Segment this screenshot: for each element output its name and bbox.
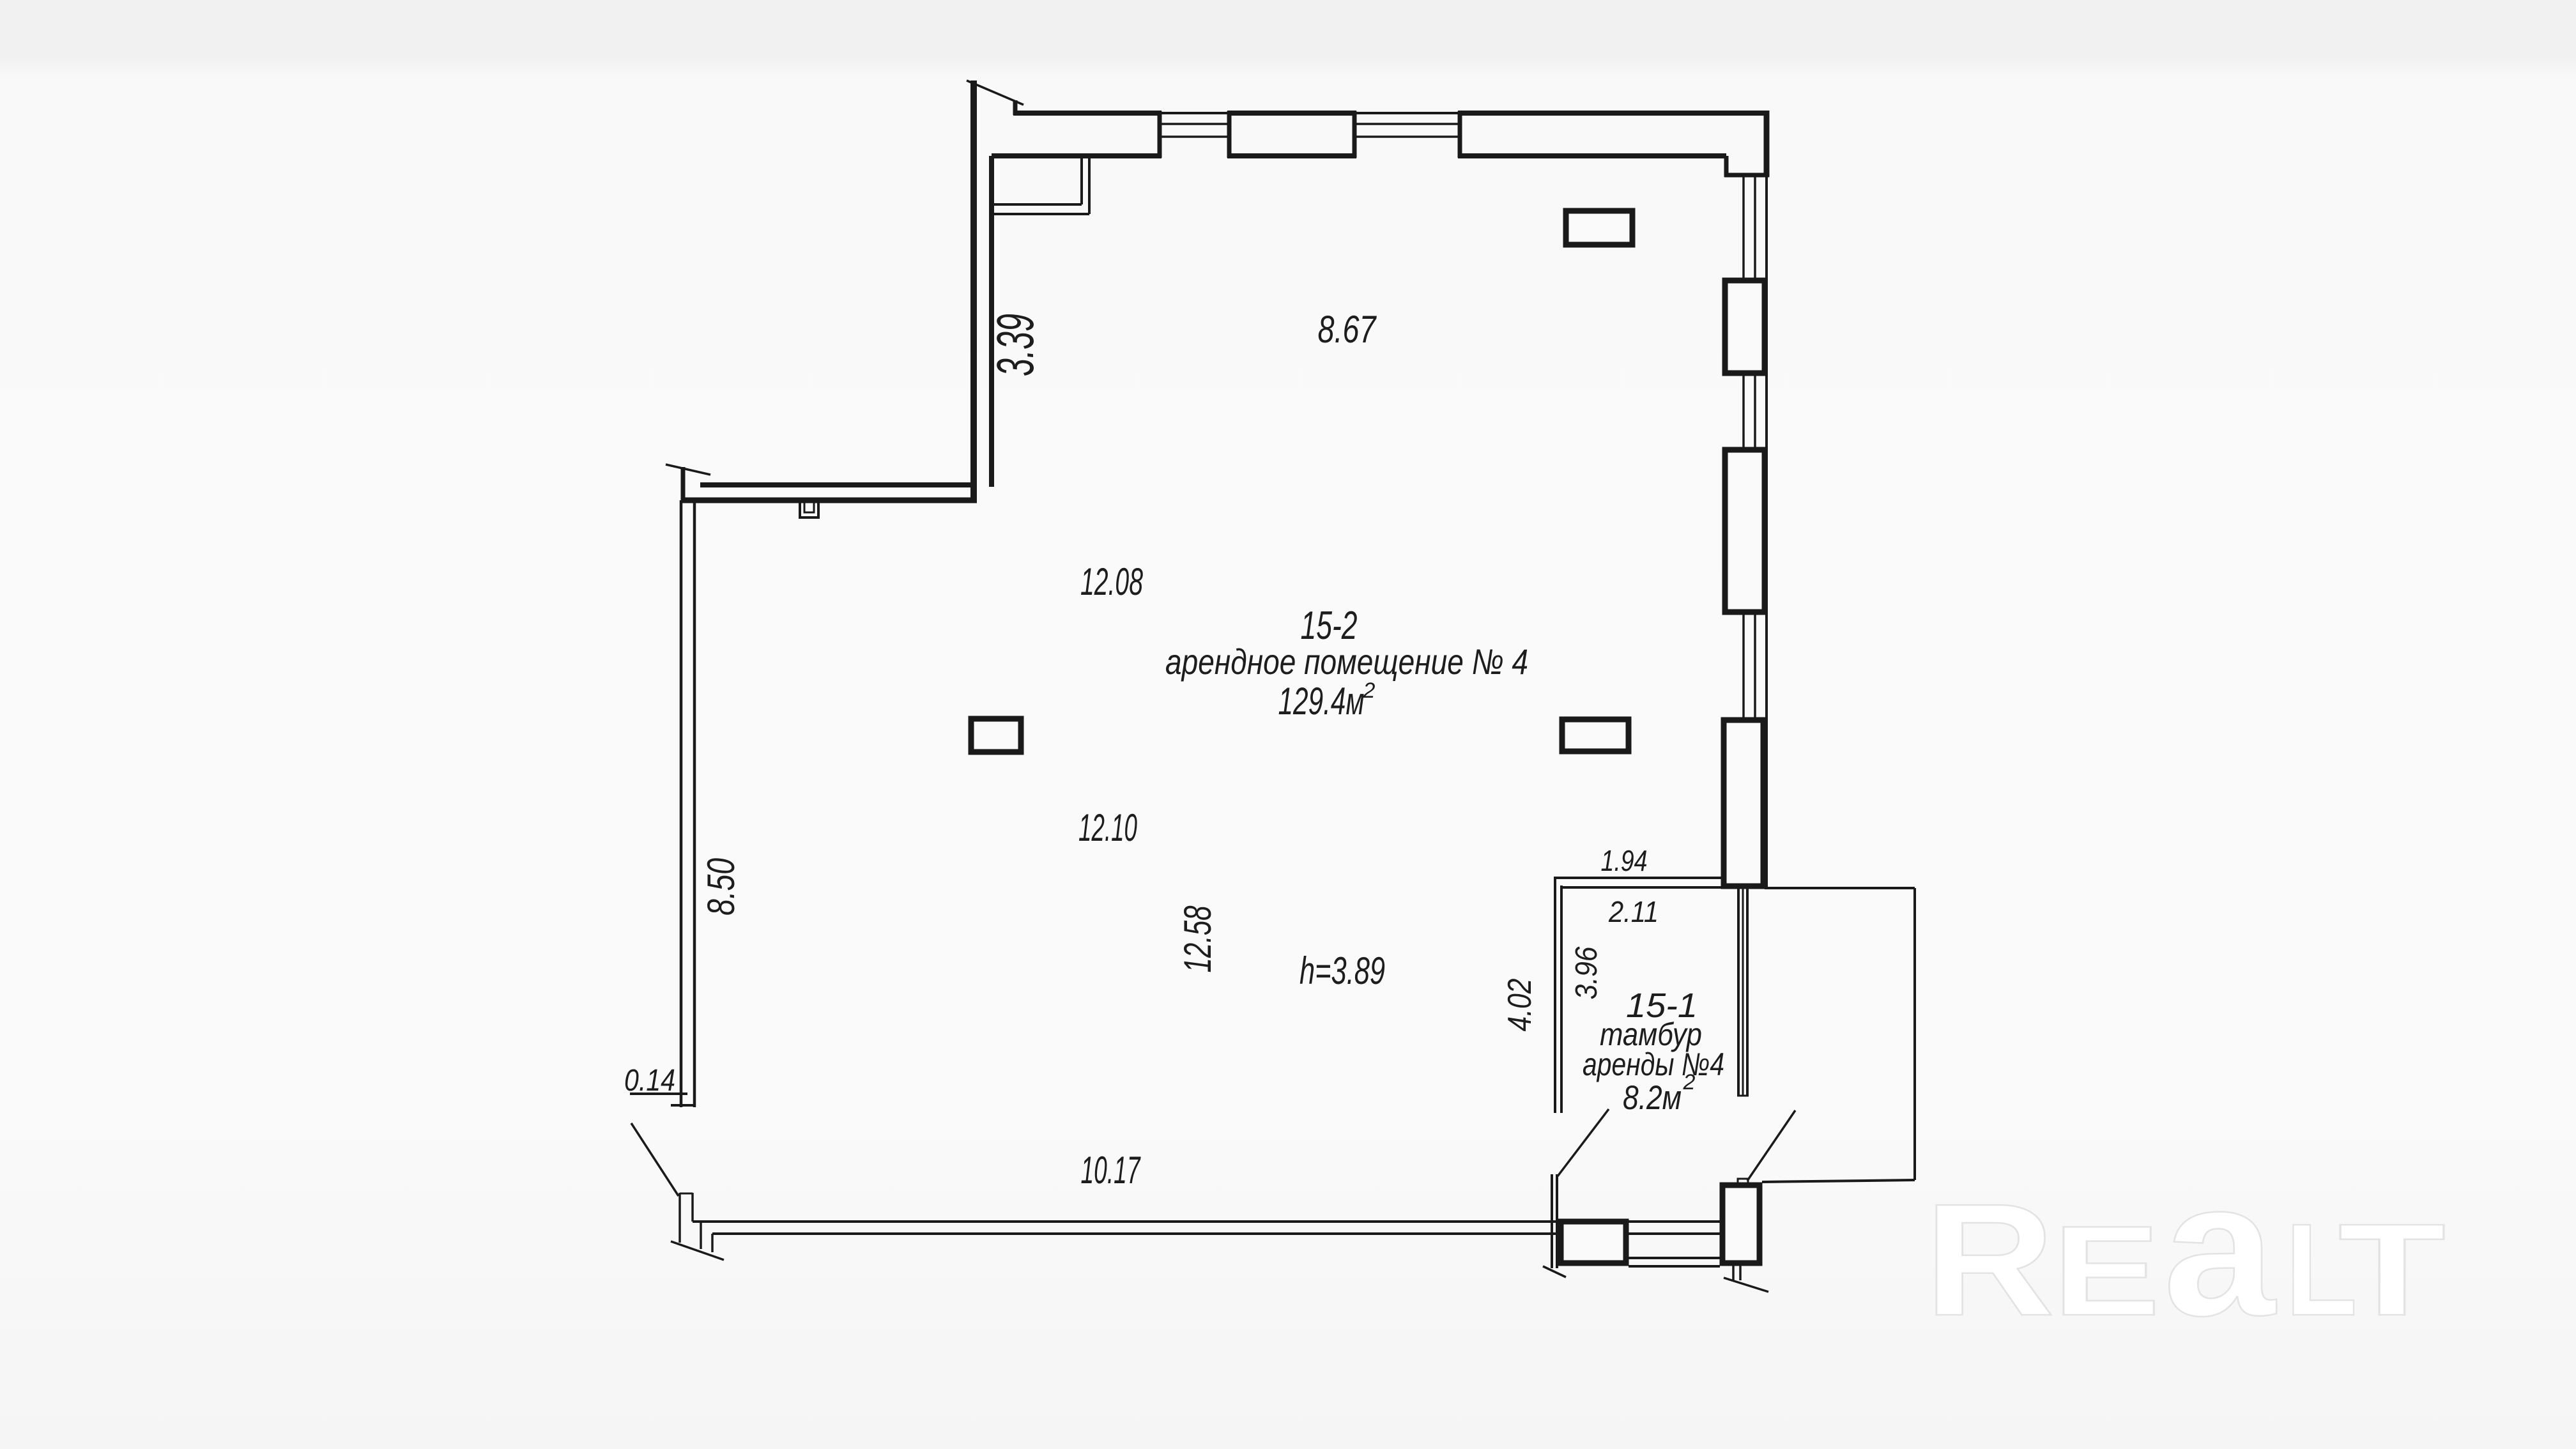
svg-text:12.58: 12.58	[1176, 905, 1219, 972]
svg-text:2: 2	[1683, 1070, 1696, 1094]
svg-text:4.02: 4.02	[1501, 978, 1538, 1031]
svg-text:T: T	[2338, 1197, 2446, 1343]
svg-text:E: E	[2053, 1200, 2160, 1342]
svg-text:8.50: 8.50	[700, 858, 742, 916]
svg-text:8.67: 8.67	[1318, 308, 1377, 351]
svg-text:129.4м: 129.4м	[1278, 680, 1365, 723]
svg-text:12.10: 12.10	[1078, 806, 1137, 849]
svg-text:3.39: 3.39	[986, 314, 1045, 376]
svg-text:2: 2	[1363, 678, 1376, 703]
svg-text:аренды №4: аренды №4	[1583, 1046, 1724, 1082]
svg-text:8.2м: 8.2м	[1623, 1079, 1682, 1117]
svg-text:1.94: 1.94	[1601, 844, 1648, 877]
svg-text:12.08: 12.08	[1080, 560, 1143, 603]
svg-text:h=3.89: h=3.89	[1299, 949, 1385, 992]
svg-text:3.96: 3.96	[1570, 946, 1604, 999]
svg-text:2.11: 2.11	[1608, 895, 1659, 928]
svg-text:a: a	[2163, 1142, 2276, 1356]
svg-text:R: R	[1924, 1170, 2055, 1349]
svg-text:арендное помещение № 4: арендное помещение № 4	[1165, 641, 1528, 682]
svg-text:10.17: 10.17	[1081, 1149, 1142, 1192]
